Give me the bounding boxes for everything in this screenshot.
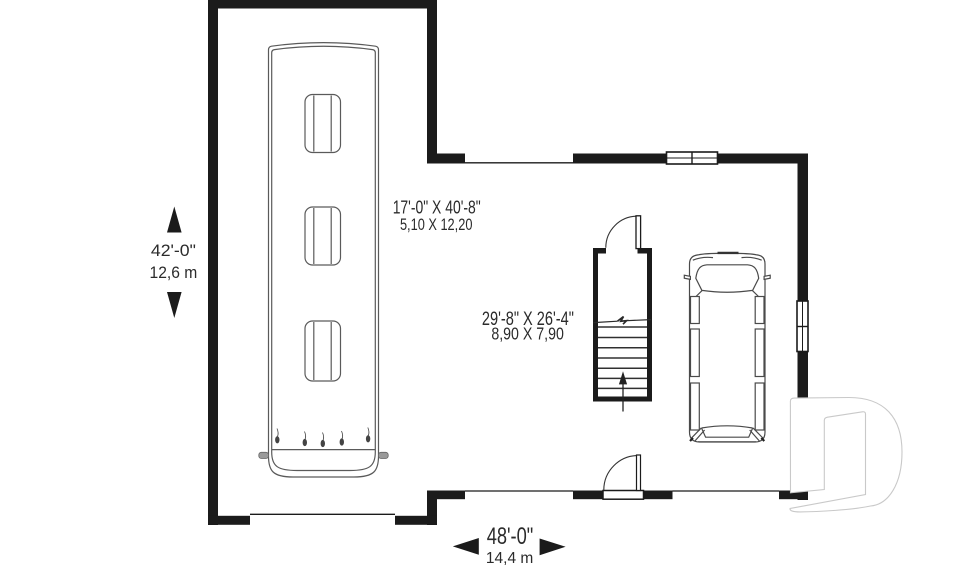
svg-text:14,4 m: 14,4 m bbox=[486, 550, 533, 567]
svg-text:8,90 X 7,90: 8,90 X 7,90 bbox=[491, 324, 564, 344]
svg-text:5,10 X 12,20: 5,10 X 12,20 bbox=[400, 215, 473, 234]
svg-text:12,6 m: 12,6 m bbox=[150, 264, 198, 282]
svg-text:48'-0": 48'-0" bbox=[487, 523, 534, 550]
svg-text:42'-0": 42'-0" bbox=[151, 242, 196, 260]
